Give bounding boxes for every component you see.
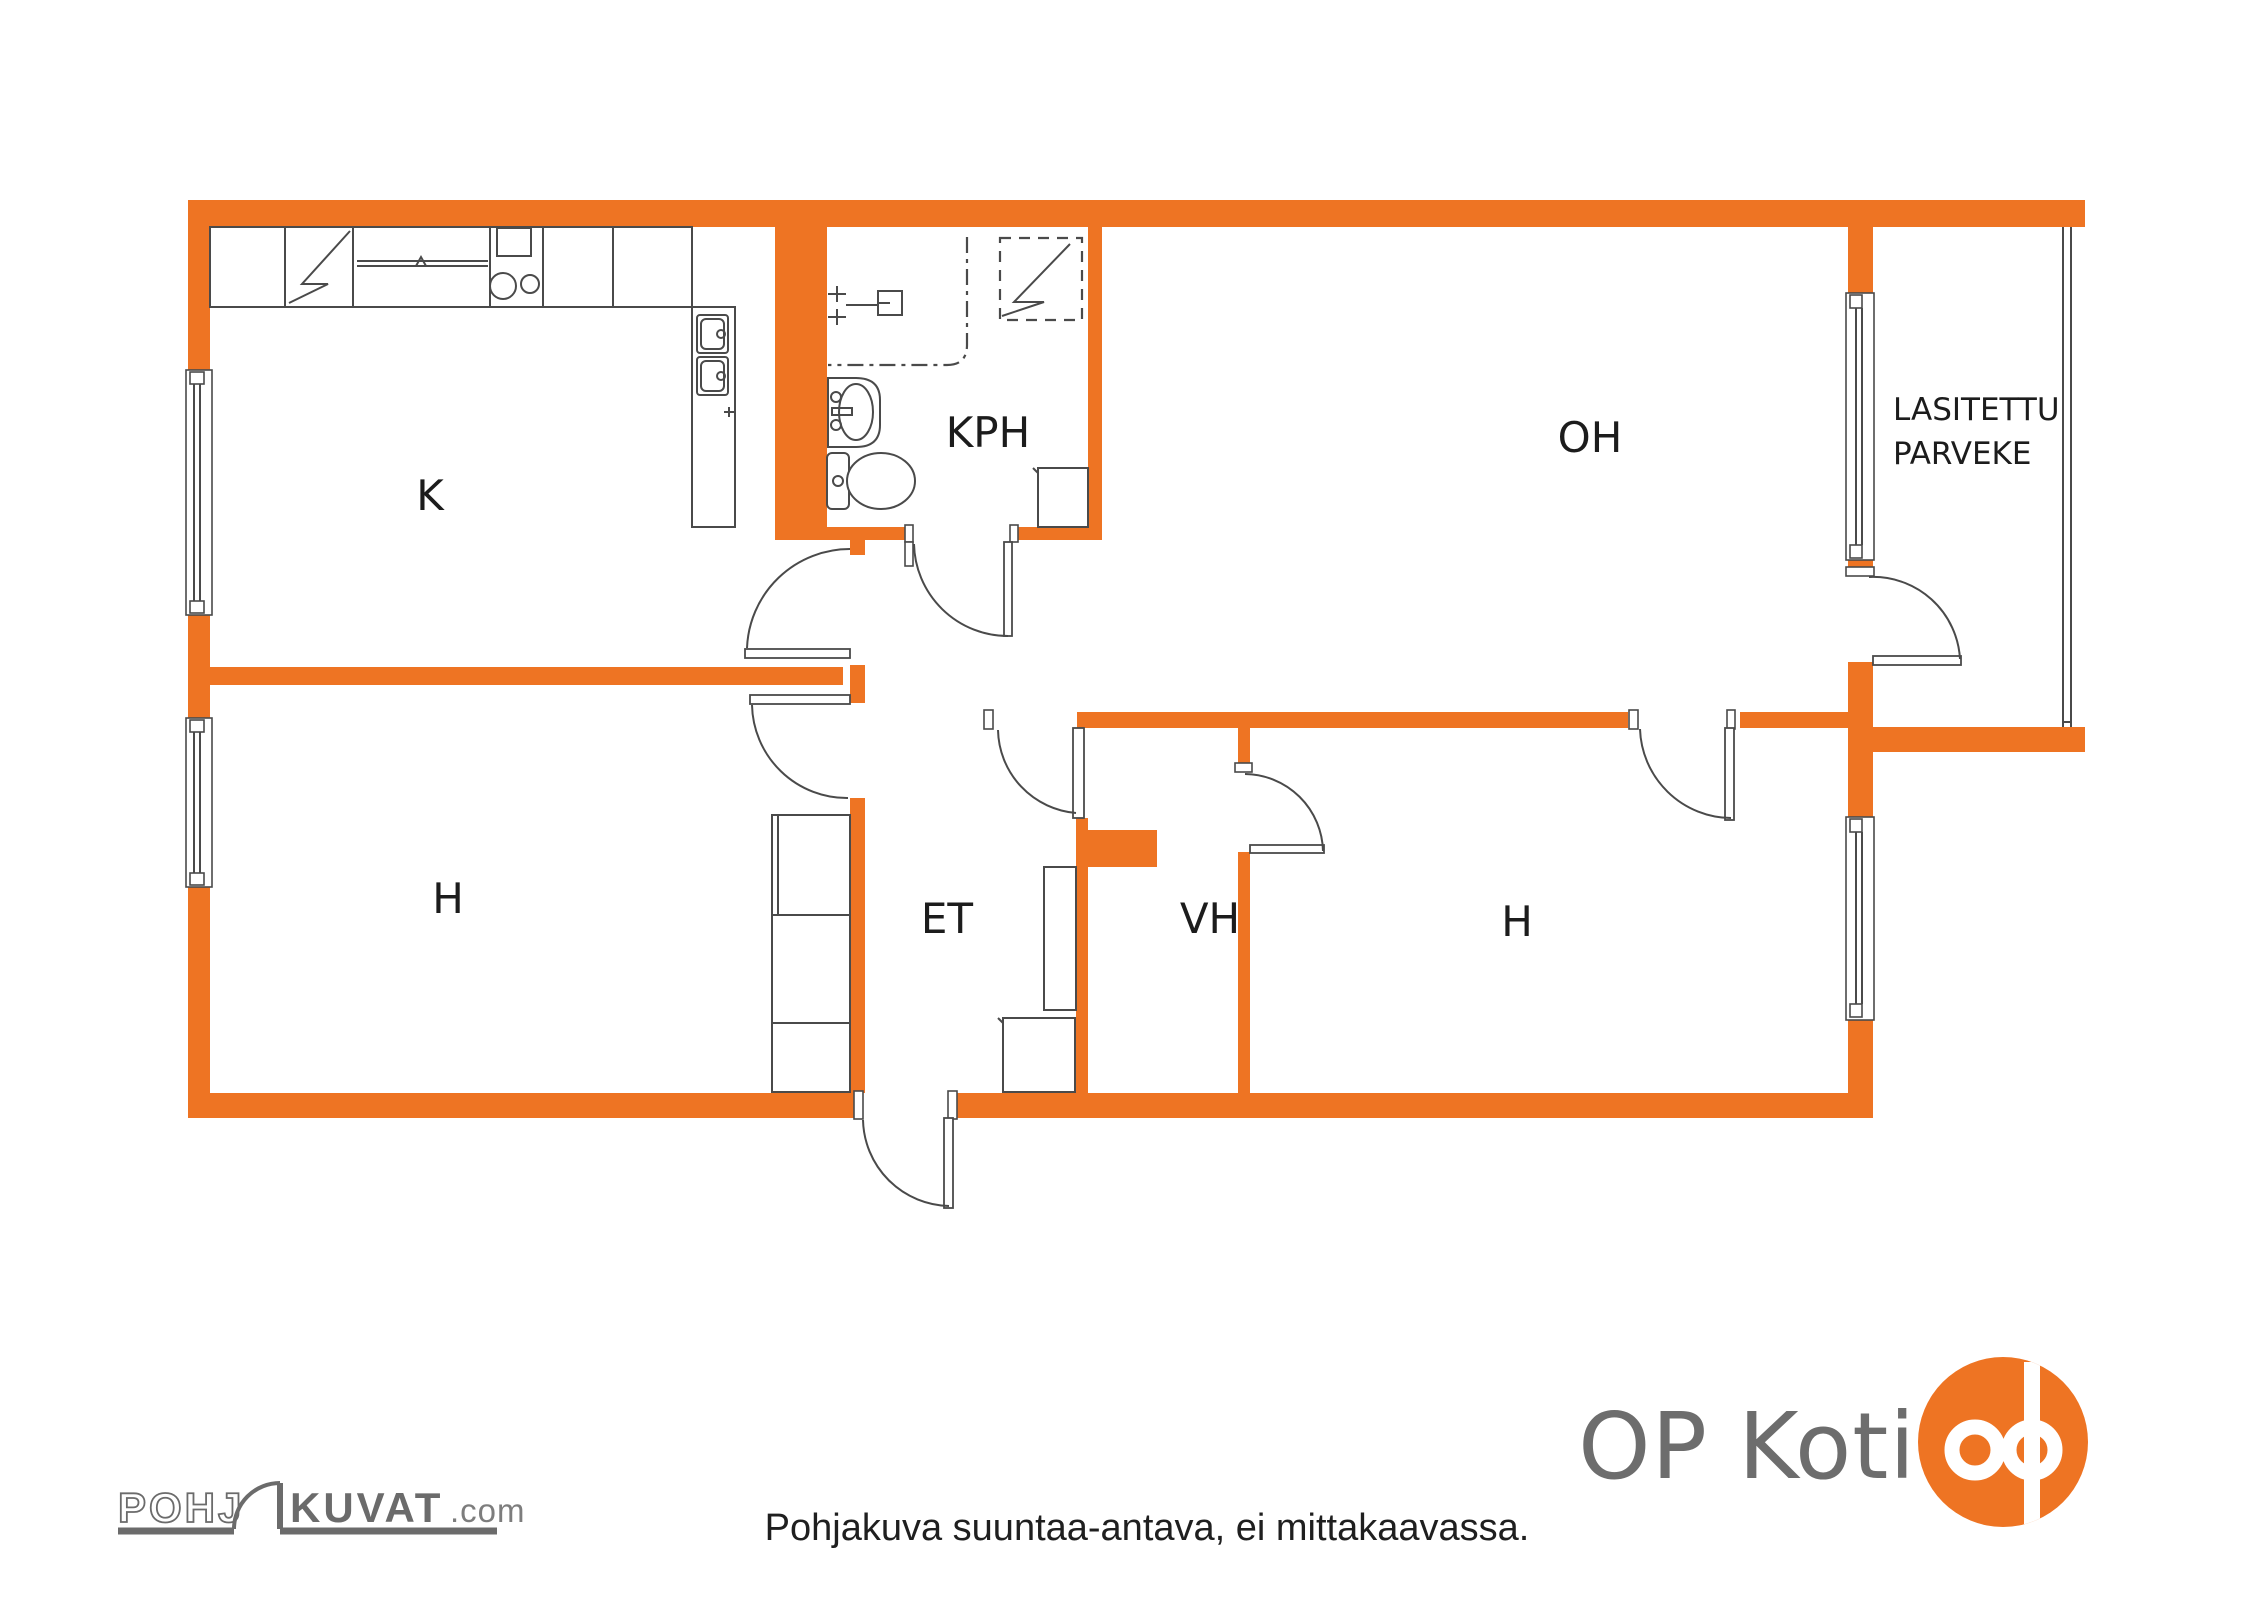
wall-living-south-west [1077,712,1628,728]
pohjakuvat-outline-text: POHJ [118,1484,244,1531]
wall-kitchen-bathroom [775,227,827,540]
pohjakuvat-suffix-text: .com [450,1492,526,1529]
wardrobe-bedroom-left [772,815,850,1092]
label-bathroom: KPH [946,408,1030,457]
label-balcony-line1: LASITETTU [1893,392,2060,428]
walls [188,200,2085,1118]
wall-stub-kitchen-doorway [850,540,865,555]
door-bedroom-right [1629,710,1735,820]
wall-top-exterior [188,200,2085,227]
wall-stub-hall [850,665,865,703]
wall-bottom-west [188,1093,862,1118]
wall-living-south-east [1740,712,1848,728]
wall-kitchen-bedroom [210,667,843,685]
label-balcony-line2: PARVEKE [1893,436,2031,472]
label-kitchen: K [416,471,445,520]
label-bedroom-right: H [1501,897,1533,946]
door-entrance [854,1091,957,1208]
label-living-room: OH [1558,413,1623,462]
window-kitchen [186,370,212,615]
wall-left-mid [188,615,210,718]
wall-left-lower [188,887,210,1118]
wall-hall-bedroom-left [850,798,865,1093]
wall-bottom-east [950,1093,1873,1118]
windows [186,227,2071,1020]
op-koti-branding: OP Koti [1578,1357,2088,1527]
window-bedroom-left [186,718,212,887]
wall-right-pier [1848,662,1873,817]
toilet [827,453,915,509]
door-bedroom-left [750,695,850,798]
floorplan-svg: K KPH OH H ET VH H LASITETTU PARVEKE Poh… [0,0,2262,1600]
door-closet-bedroom [1235,763,1324,853]
storage-fixtures [772,815,1076,1092]
wall-hall-closet [1076,818,1088,1093]
pohjakuvat-solid-text: KUVAT [290,1484,443,1531]
label-walk-in-closet: VH [1180,894,1240,943]
label-bedroom-left: H [432,874,464,923]
floorplan-page: K KPH OH H ET VH H LASITETTU PARVEKE Poh… [0,0,2262,1600]
washing-machine-reservation [1000,238,1082,320]
wall-bathroom-bottom-east [1017,527,1102,540]
hall-cabinet [998,1018,1075,1092]
shower-mixer [828,286,902,325]
bathroom-cabinet [1033,468,1088,527]
stove-vent [497,228,531,256]
pohjakuvat-logo: POHJ KUVAT .com [118,1483,526,1531]
door-balcony [1846,567,1961,665]
wall-closet-bedroom-lower [1238,852,1250,1093]
wall-closet-flange [1088,830,1157,867]
wall-balcony-bottom [1873,727,2085,752]
wall-bathroom-bottom-west [827,527,907,540]
label-entry-hall: ET [921,894,974,943]
bathroom-sink [828,378,880,447]
op-logo-icon [1918,1357,2088,1527]
window-living-balcony [1846,293,1874,560]
hall-shelf [1044,867,1076,1010]
door-bathroom [905,525,1018,636]
door-closet [984,710,1084,818]
kitchen-fixtures [210,227,735,527]
wall-left-upper [188,227,210,370]
wall-balcony-left-top [1848,227,1873,293]
op-koti-wordmark: OP Koti [1578,1393,1916,1500]
bathroom-fixtures [827,237,1088,527]
window-bedroom-right [1846,817,1874,1020]
wall-bathroom-right [1088,227,1102,538]
door-kitchen [745,549,850,658]
disclaimer-text: Pohjakuva suuntaa-antava, ei mittakaavas… [765,1507,1530,1549]
wall-right-lower [1848,1020,1873,1118]
op-logo-bar [2024,1362,2040,1524]
balcony-glazing [2063,227,2071,727]
